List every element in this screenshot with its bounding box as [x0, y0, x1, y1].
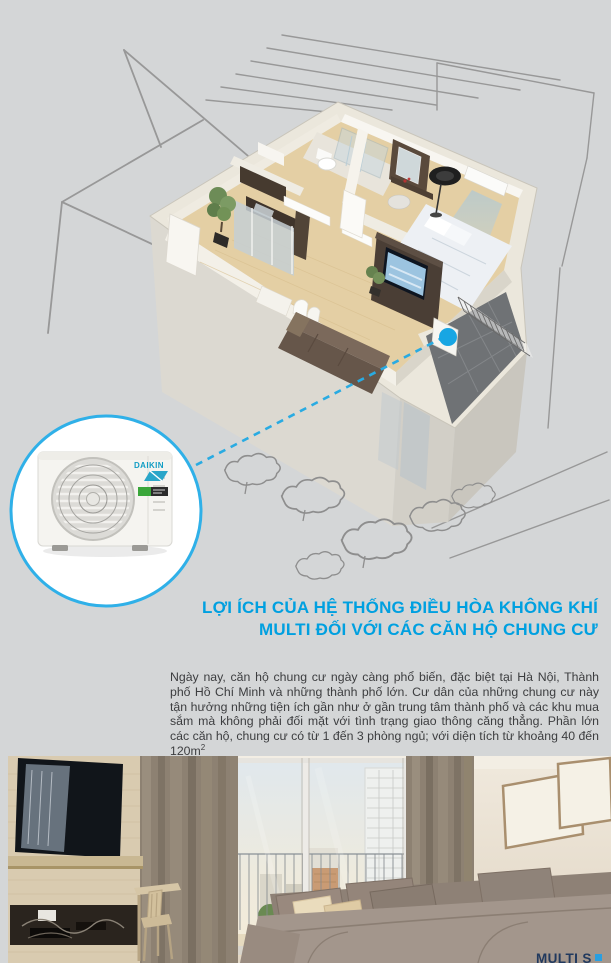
- outdoor-unit-callout: DAIKIN: [11, 416, 201, 606]
- body-paragraph-superscript: 2: [201, 743, 205, 752]
- multi-s-logo-text: MULTI S: [536, 951, 592, 963]
- page-title-line2: MULTI ĐỐI VỚI CÁC CĂN HỘ CHUNG CƯ: [38, 619, 598, 641]
- bedroom-stool: [388, 195, 410, 209]
- left-curtain: [136, 756, 238, 963]
- blue-square-mark-icon: [595, 954, 602, 961]
- fan-grille-icon: [52, 458, 134, 540]
- page-title: LỢI ÍCH CỦA HỆ THỐNG ĐIỀU HÒA KHÔNG KHÍ …: [38, 597, 598, 640]
- outdoor-unit-location-dot: [439, 328, 457, 346]
- interior-photo: [8, 756, 611, 963]
- body-paragraph: Ngày nay, căn hộ chung cư ngày càng phổ …: [170, 670, 599, 758]
- interior-photo-art: [8, 756, 611, 963]
- cable-recess: [10, 905, 138, 945]
- body-paragraph-text: Ngày nay, căn hộ chung cư ngày càng phổ …: [170, 670, 599, 758]
- energy-label-icon: [138, 487, 168, 496]
- brochure-page: DAIKIN LỢI ÍCH CỦA HỆ THỐNG ĐIỀU HÒA KHÔ…: [0, 0, 611, 963]
- outdoor-unit-illustration: DAIKIN: [38, 452, 172, 557]
- page-title-line1: LỢI ÍCH CỦA HỆ THỐNG ĐIỀU HÒA KHÔNG KHÍ: [38, 597, 598, 619]
- multi-s-logo: MULTI S: [536, 951, 602, 963]
- daikin-logo-text: DAIKIN: [134, 461, 164, 470]
- apartment-3d-illustration: DAIKIN: [0, 0, 611, 756]
- tv-wall-panel: [8, 756, 143, 963]
